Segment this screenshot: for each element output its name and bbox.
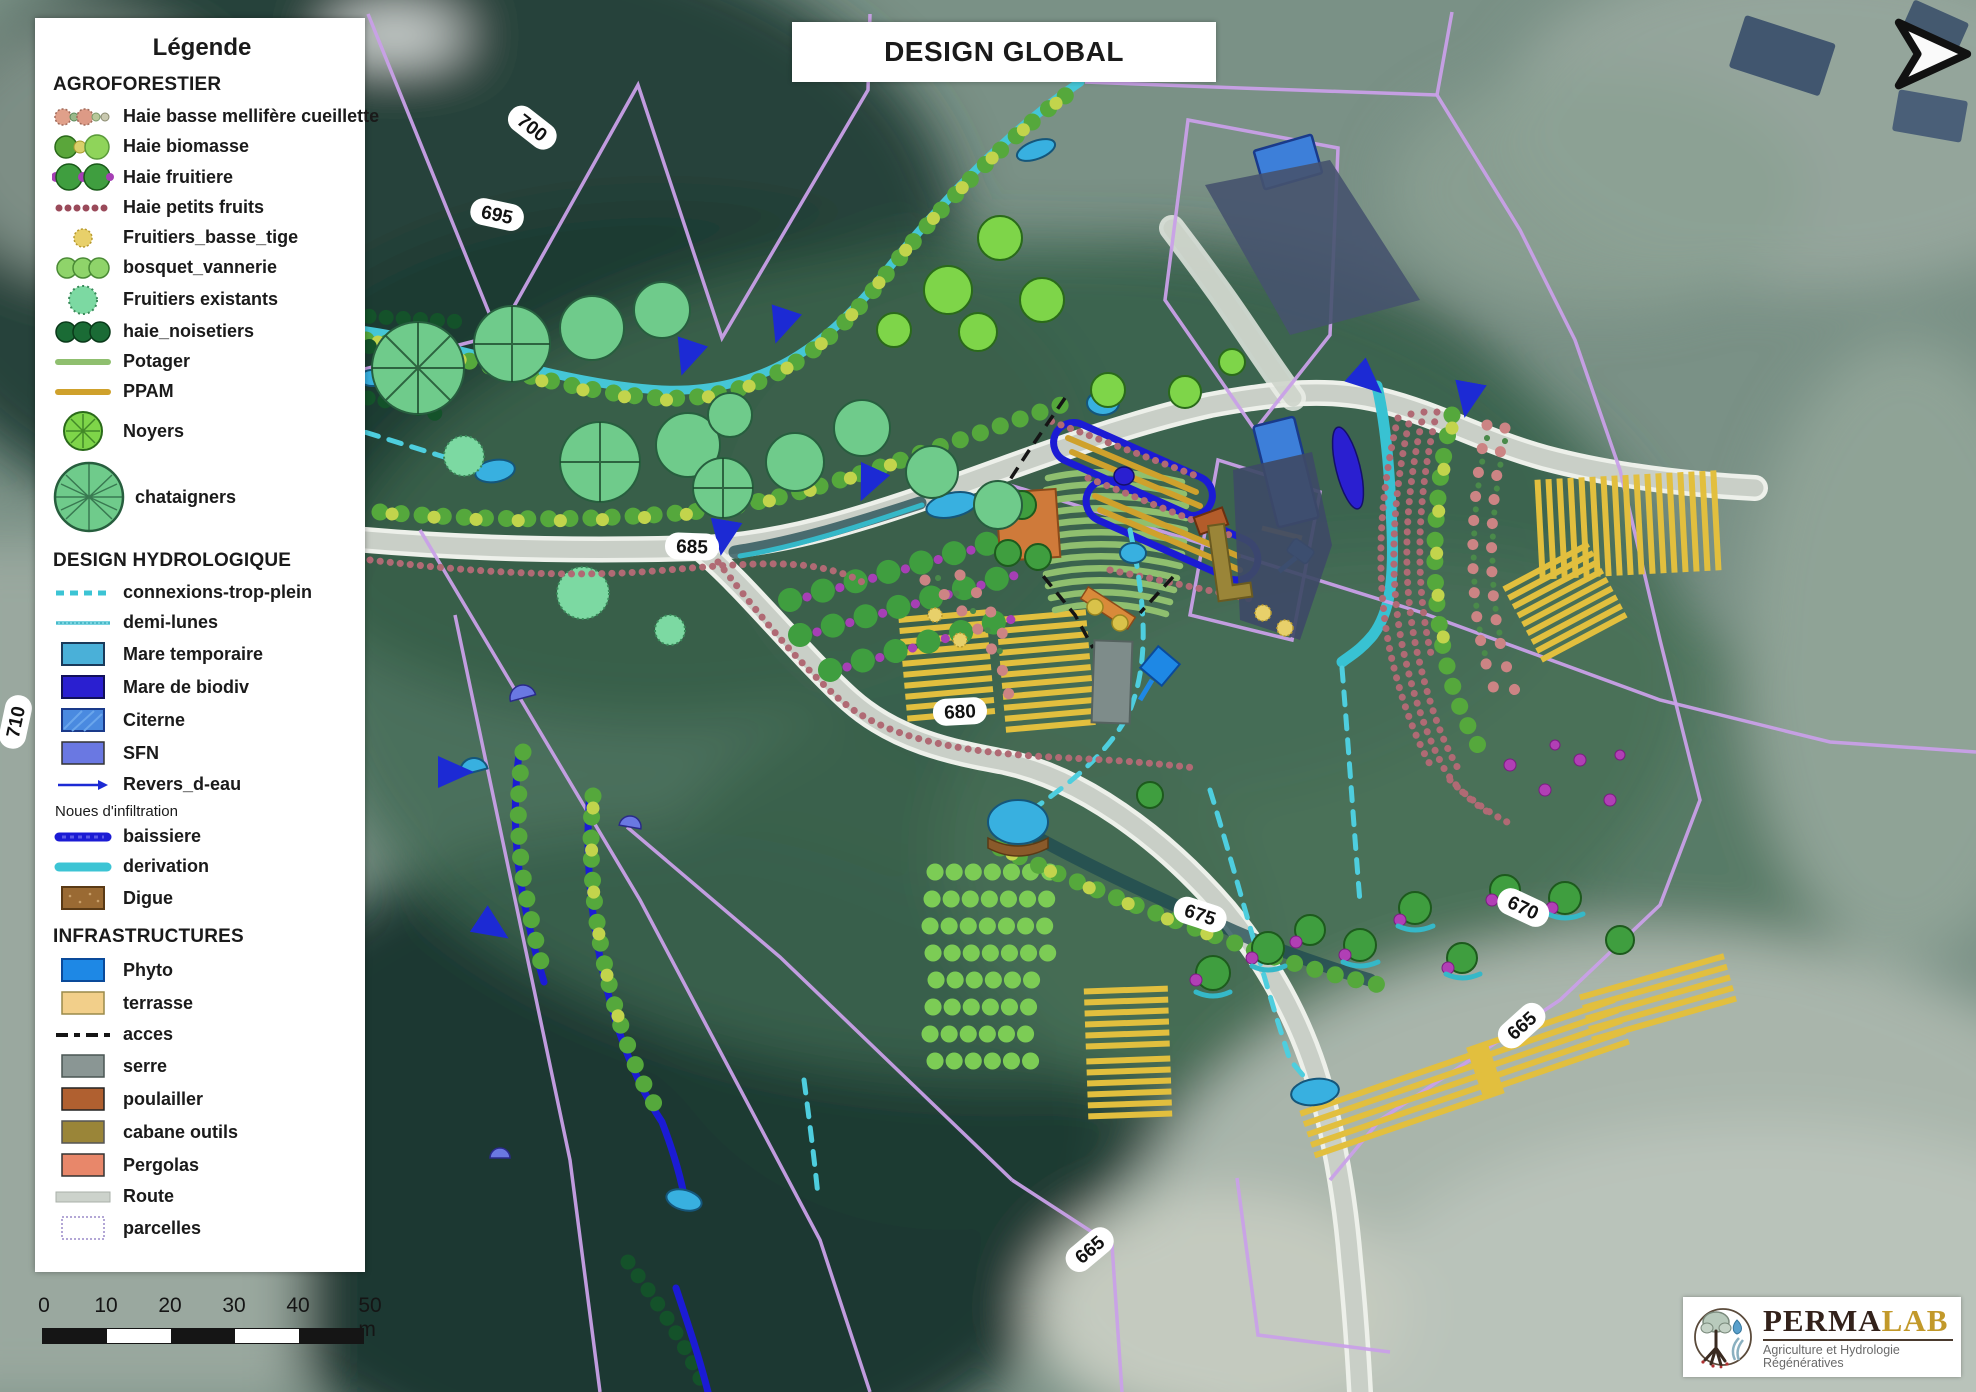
scale-label: 0 [38, 1294, 50, 1318]
legend-item-label: baissiere [123, 826, 201, 847]
citerne-icon [51, 706, 115, 734]
permalab-logo: PERMALAB Agriculture et Hydrologie Régén… [1683, 1297, 1961, 1377]
legend-item: acces [51, 1020, 353, 1049]
legend-item-label: Potager [123, 351, 190, 372]
legend-section-infrastructures: INFRASTRUCTURES [53, 926, 353, 948]
legend-item: chataigners [51, 456, 353, 538]
scale-bar-labels: 0 10 20 30 40 50 m [40, 1294, 380, 1320]
legend-item-label: derivation [123, 856, 209, 877]
legend-item-label: Route [123, 1186, 174, 1207]
legend-item-label: connexions-trop-plein [123, 582, 312, 603]
haie-mellifere-icon [51, 104, 115, 130]
legend-item: Haie petits fruits [51, 193, 353, 222]
connexions-trop-plein-icon [51, 588, 115, 598]
mare-de-biodiv [1114, 467, 1134, 485]
legend-item: Phyto [51, 954, 353, 986]
legend-item: Pergolas [51, 1149, 353, 1181]
potager-icon [51, 357, 115, 367]
noues-infiltration-subheading: Noues d'infiltration [55, 803, 353, 820]
legend-item: connexions-trop-plein [51, 578, 353, 607]
demi-lunes-icon [51, 618, 115, 628]
bosquet-vannerie-icon [51, 256, 115, 280]
legend-item-label: Haie petits fruits [123, 197, 264, 218]
legend-section-hydrologique: DESIGN HYDROLOGIQUE [53, 550, 353, 572]
legend-item: bosquet_vannerie [51, 253, 353, 282]
legend-item-label: poulailler [123, 1089, 203, 1110]
cabane-outils-icon [51, 1118, 115, 1146]
serre-greenhouse [1092, 640, 1133, 723]
haie-noisetiers-icon [51, 320, 115, 344]
sfn-icon [51, 739, 115, 767]
scale-label: 20 [158, 1294, 181, 1318]
legend-item-label: cabane outils [123, 1122, 238, 1143]
phyto-icon [51, 956, 115, 984]
legend-item-label: Haie fruitiere [123, 167, 233, 188]
legend-section-agroforestier: AGROFORESTIER [53, 74, 353, 96]
legend-item-label: parcelles [123, 1218, 201, 1239]
svg-text:680: 680 [944, 701, 977, 724]
legend-item: Potager [51, 347, 353, 376]
legend-item: serre [51, 1050, 353, 1082]
legend-item: Revers_d-eau [51, 770, 353, 799]
route-icon [51, 1190, 115, 1204]
legend-item: PPAM [51, 377, 353, 406]
logo-divider [1763, 1339, 1953, 1341]
scale-label: 30 [222, 1294, 245, 1318]
legend-item: Haie basse mellifère cueillette [51, 102, 353, 131]
legend-item: Route [51, 1182, 353, 1211]
legend-item: haie_noisetiers [51, 317, 353, 346]
legend-item-label: acces [123, 1024, 173, 1045]
noyers-icon [51, 408, 115, 454]
legend-item: Citerne [51, 704, 353, 736]
haie-fruitiere-icon [51, 162, 115, 192]
revers-d-eau-icon [51, 778, 115, 792]
legend-item: baissiere [51, 822, 353, 851]
legend-item-label: Mare de biodiv [123, 677, 249, 698]
pergolas-icon [51, 1151, 115, 1179]
haie-petits-fruits-icon [51, 202, 115, 214]
design-global-map-sheet: 700 695 685 680 675 670 665 665 710 Lége… [0, 0, 1976, 1392]
derivation-icon [51, 861, 115, 873]
legend-item-label: Haie biomasse [123, 136, 249, 157]
legend-item: Digue [51, 882, 353, 914]
mare-biodiv-icon [51, 673, 115, 701]
legend-item-label: bosquet_vannerie [123, 257, 277, 278]
legend-item-label: Phyto [123, 960, 173, 981]
legend-item: poulailler [51, 1083, 353, 1115]
legend-item-label: SFN [123, 743, 159, 764]
legend-item: Mare temporaire [51, 638, 353, 670]
legend-item: Fruitiers existants [51, 283, 353, 316]
legend-item-label: Digue [123, 888, 173, 909]
acces-icon [51, 1031, 115, 1039]
digue-icon [51, 884, 115, 912]
legend-panel: Légende AGROFORESTIER Haie basse mellifè… [35, 18, 365, 1272]
legend-item: Mare de biodiv [51, 671, 353, 703]
legend-item: Haie fruitiere [51, 162, 353, 192]
legend-item: demi-lunes [51, 608, 353, 637]
legend-item-label: serre [123, 1056, 167, 1077]
legend-item-label: Noyers [123, 421, 184, 442]
legend-item: terrasse [51, 987, 353, 1019]
fruitiers-basse-tige-icon [51, 227, 115, 249]
ppam-icon [51, 387, 115, 397]
legend-item-label: Haie basse mellifère cueillette [123, 106, 379, 127]
legend-item: Haie biomasse [51, 132, 353, 161]
serre-icon [51, 1052, 115, 1080]
legend-item-label: Fruitiers_basse_tige [123, 227, 298, 248]
legend-item: Fruitiers_basse_tige [51, 223, 353, 252]
haie-biomasse-icon [51, 133, 115, 161]
scale-bar: 0 10 20 30 40 50 m [40, 1294, 380, 1354]
legend-item: SFN [51, 737, 353, 769]
chataigners-icon [51, 458, 127, 536]
legend-item-label: terrasse [123, 993, 193, 1014]
legend-title: Légende [51, 34, 353, 62]
permalab-subtitle: Agriculture et Hydrologie Régénératives [1763, 1344, 1953, 1369]
legend-item: cabane outils [51, 1116, 353, 1148]
permalab-logo-text: PERMALAB Agriculture et Hydrologie Régén… [1763, 1305, 1953, 1369]
terrasse-icon [51, 989, 115, 1017]
legend-item: parcelles [51, 1212, 353, 1244]
permalab-emblem-icon [1691, 1304, 1755, 1370]
legend-item-label: haie_noisetiers [123, 321, 254, 342]
legend-item: derivation [51, 852, 353, 881]
scale-label: 40 [286, 1294, 309, 1318]
legend-item-label: chataigners [135, 487, 236, 508]
svg-text:685: 685 [676, 536, 709, 558]
legend-item-label: Pergolas [123, 1155, 199, 1176]
legend-item-label: Citerne [123, 710, 185, 731]
mare-temporaire-icon [51, 640, 115, 668]
poulailler-icon [51, 1085, 115, 1113]
legend-item-label: PPAM [123, 381, 174, 402]
scale-label: 10 [94, 1294, 117, 1318]
north-arrow-icon [1891, 14, 1975, 94]
scale-bar-segments [42, 1328, 364, 1344]
permalab-brand: PERMALAB [1763, 1305, 1953, 1336]
legend-item-label: Revers_d-eau [123, 774, 241, 795]
map-title-box: DESIGN GLOBAL [792, 22, 1216, 82]
legend-item-label: demi-lunes [123, 612, 218, 633]
legend-item-label: Mare temporaire [123, 644, 263, 665]
parcelles-icon [51, 1214, 115, 1242]
legend-item: Noyers [51, 407, 353, 455]
map-title: DESIGN GLOBAL [884, 36, 1124, 68]
legend-item-label: Fruitiers existants [123, 289, 278, 310]
baissiere-icon [51, 831, 115, 843]
fruitiers-existants-icon [51, 284, 115, 316]
